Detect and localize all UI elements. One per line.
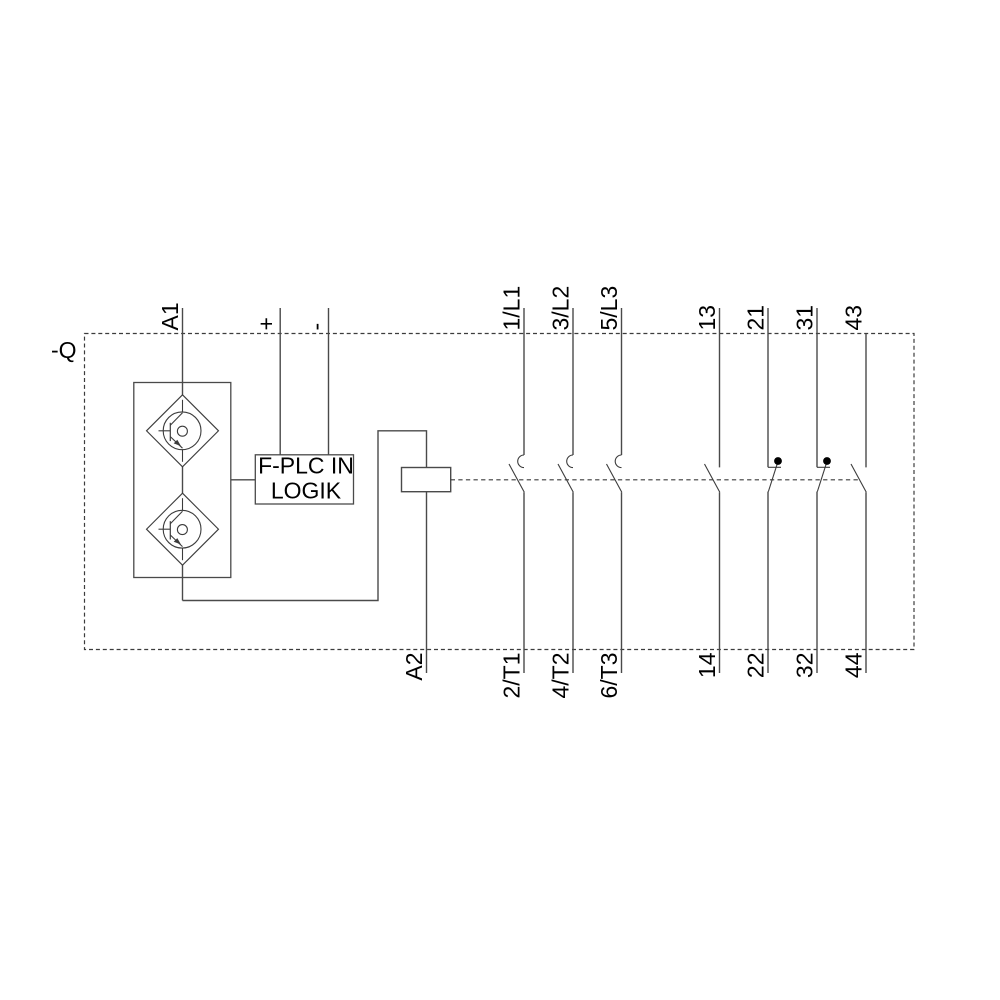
svg-text:22: 22: [743, 653, 769, 679]
svg-text:5/L3: 5/L3: [596, 286, 622, 331]
svg-text:14: 14: [694, 652, 720, 678]
svg-text:43: 43: [841, 305, 867, 331]
svg-text:F-PLC IN: F-PLC IN: [258, 453, 354, 479]
svg-text:1/L1: 1/L1: [499, 286, 525, 331]
svg-text:44: 44: [841, 652, 867, 678]
svg-text:-Q: -Q: [51, 337, 77, 363]
svg-text:-: -: [303, 323, 329, 331]
svg-text:32: 32: [792, 653, 818, 679]
svg-text:4/T2: 4/T2: [548, 653, 574, 699]
svg-text:13: 13: [694, 305, 720, 331]
svg-text:A2: A2: [401, 653, 427, 681]
svg-text:LOGIK: LOGIK: [271, 478, 342, 504]
svg-text:2/T1: 2/T1: [499, 653, 525, 699]
svg-text:6/T3: 6/T3: [596, 653, 622, 699]
svg-text:21: 21: [743, 305, 769, 331]
svg-text:+: +: [253, 317, 279, 330]
svg-text:3/L2: 3/L2: [548, 286, 574, 331]
svg-text:A1: A1: [157, 302, 183, 330]
svg-text:31: 31: [792, 305, 818, 331]
